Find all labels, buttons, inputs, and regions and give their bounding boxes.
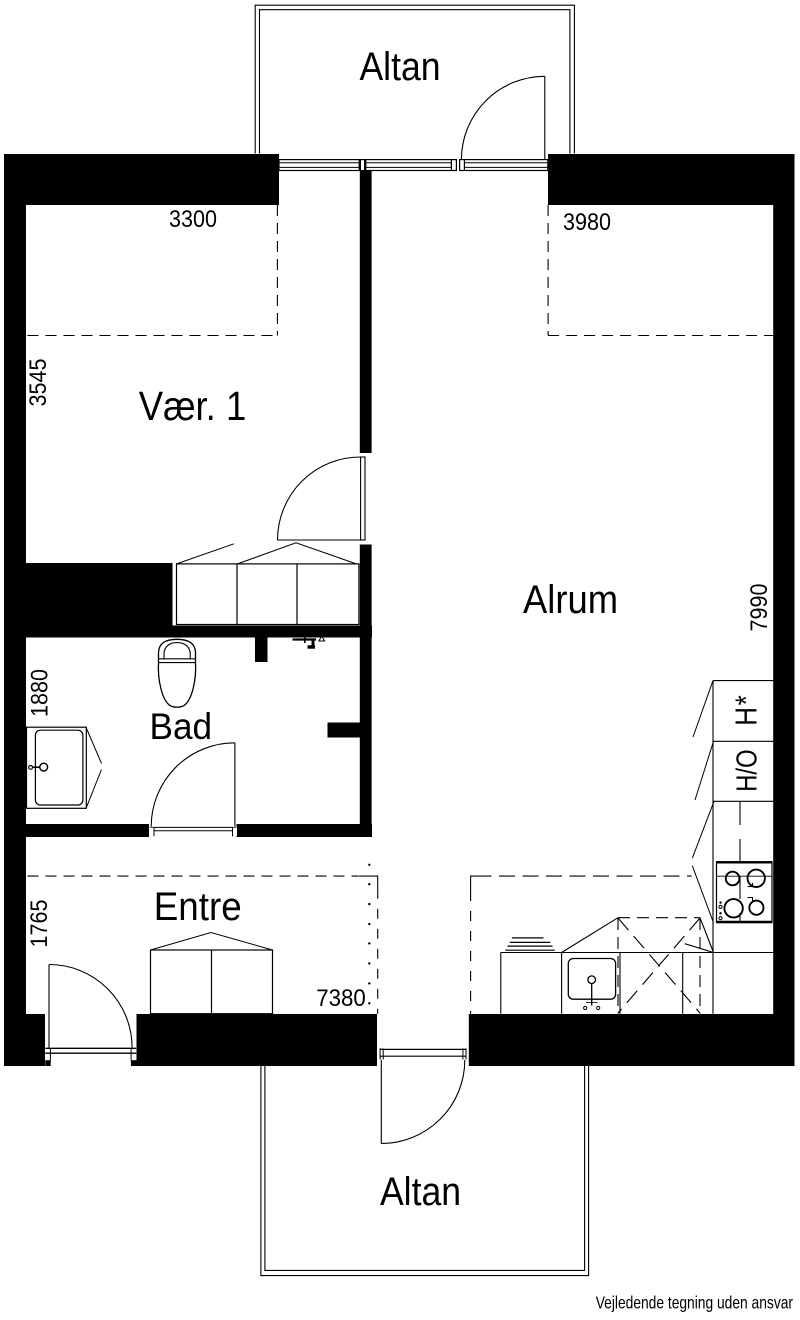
svg-text:3300: 3300 [169,205,217,233]
svg-text:Alrum: Alrum [523,577,618,622]
svg-text:3545: 3545 [24,359,52,407]
svg-text:H/O: H/O [730,749,762,792]
svg-text:7380: 7380 [316,984,366,1011]
svg-text:Vær. 1: Vær. 1 [139,384,246,429]
svg-text:Altan: Altan [380,1170,461,1214]
svg-text:Bad: Bad [150,705,213,747]
svg-text:7990: 7990 [745,584,773,632]
svg-text:3980: 3980 [563,208,611,236]
svg-text:Entre: Entre [154,885,242,930]
svg-text:Altan: Altan [359,45,440,89]
svg-text:H*: H* [729,695,764,726]
svg-text:Vejledende tegning uden ansvar: Vejledende tegning uden ansvar [596,1294,793,1313]
svg-text:1765: 1765 [25,900,53,948]
svg-text:1880: 1880 [25,669,53,717]
